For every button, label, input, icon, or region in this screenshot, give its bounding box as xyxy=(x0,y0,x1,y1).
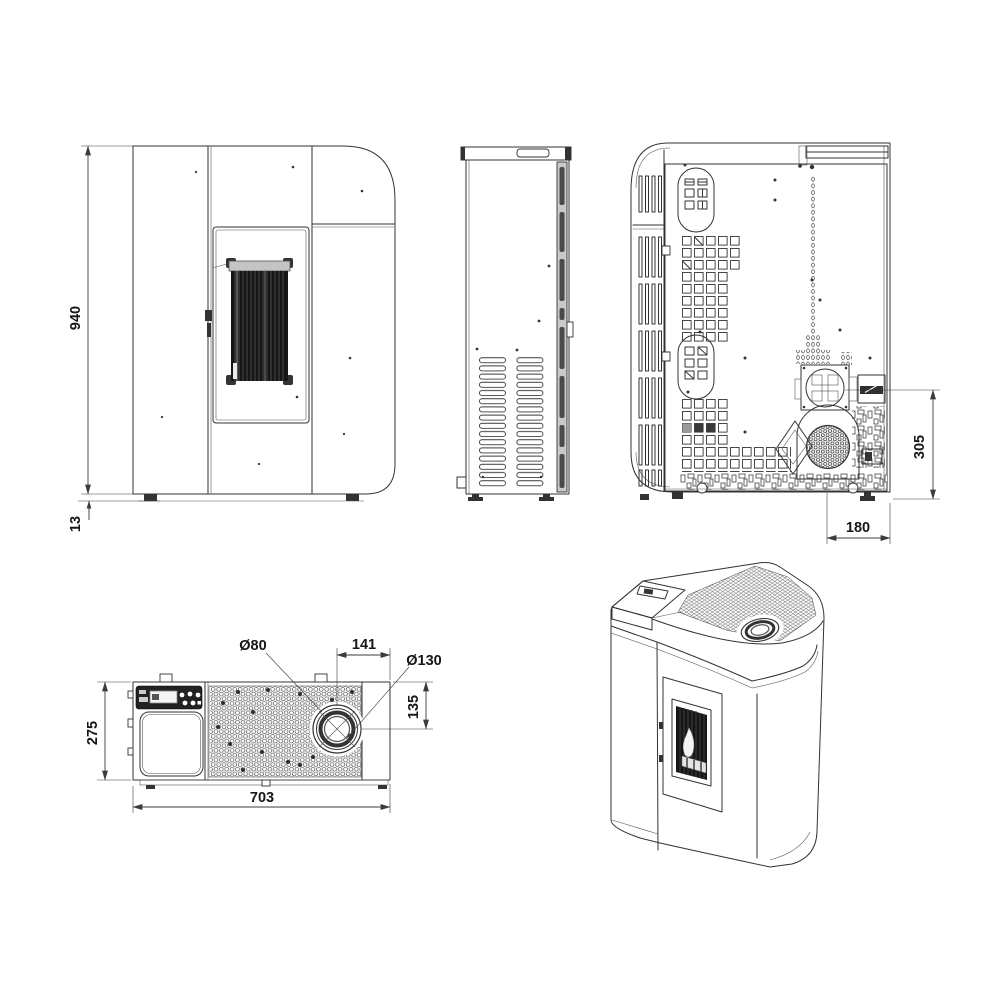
top-hopper-lid[interactable] xyxy=(140,712,203,776)
back-combustion-blower xyxy=(776,405,859,479)
dim-back-flue-offset: 180 xyxy=(846,520,870,536)
side-feet xyxy=(468,494,554,501)
front-dimensions: 940 13 xyxy=(68,146,160,532)
top-control-panel xyxy=(136,686,202,709)
front-view: 940 13 xyxy=(68,146,395,532)
back-square-grid-upper xyxy=(681,235,730,343)
front-door-handle xyxy=(205,310,212,337)
back-hole-chain xyxy=(810,176,815,334)
back-square-grid-wide xyxy=(681,446,791,472)
top-view: 275 703 141 135 Ø80 Ø130 xyxy=(85,637,442,813)
front-foot-left xyxy=(144,494,157,501)
technical-drawing-sheet: 940 13 xyxy=(0,0,1000,1000)
back-terminal-box xyxy=(858,375,885,403)
side-top-cap xyxy=(461,147,571,160)
persp-door[interactable] xyxy=(659,677,722,812)
back-oval-cutout-bottom xyxy=(678,335,714,399)
top-flue-outlet xyxy=(310,702,365,757)
dim-front-overall-height: 940 xyxy=(68,306,84,330)
dim-back-flue-height: 305 xyxy=(912,435,928,459)
side-louver-vents xyxy=(479,356,544,488)
persp-top-grille xyxy=(678,566,816,650)
perspective-view xyxy=(611,563,824,868)
back-smoke-fan xyxy=(795,365,857,410)
back-oval-cutout-top xyxy=(678,168,714,232)
dim-top-overall-width: 703 xyxy=(250,790,274,806)
stove-drawing: 940 13 xyxy=(0,0,1000,1000)
side-rear-spine xyxy=(557,162,573,492)
front-door-window xyxy=(226,258,293,385)
back-view: 305 180 xyxy=(631,143,940,544)
side-view xyxy=(457,147,573,501)
dim-top-depth: 275 xyxy=(85,721,101,745)
dim-top-collar-diameter: Ø130 xyxy=(406,653,441,669)
dim-front-foot-height: 13 xyxy=(68,516,84,532)
back-top-bracket xyxy=(799,146,888,169)
dim-top-smoke-outlet-diameter: Ø80 xyxy=(239,638,266,654)
persp-control-panel xyxy=(612,581,685,630)
dim-top-flue-offset-front: 135 xyxy=(406,695,422,719)
front-foot-right xyxy=(346,494,359,501)
dim-top-flue-offset-right: 141 xyxy=(352,637,376,653)
side-door-latch xyxy=(567,322,573,337)
back-square-grid-lower xyxy=(681,398,730,447)
